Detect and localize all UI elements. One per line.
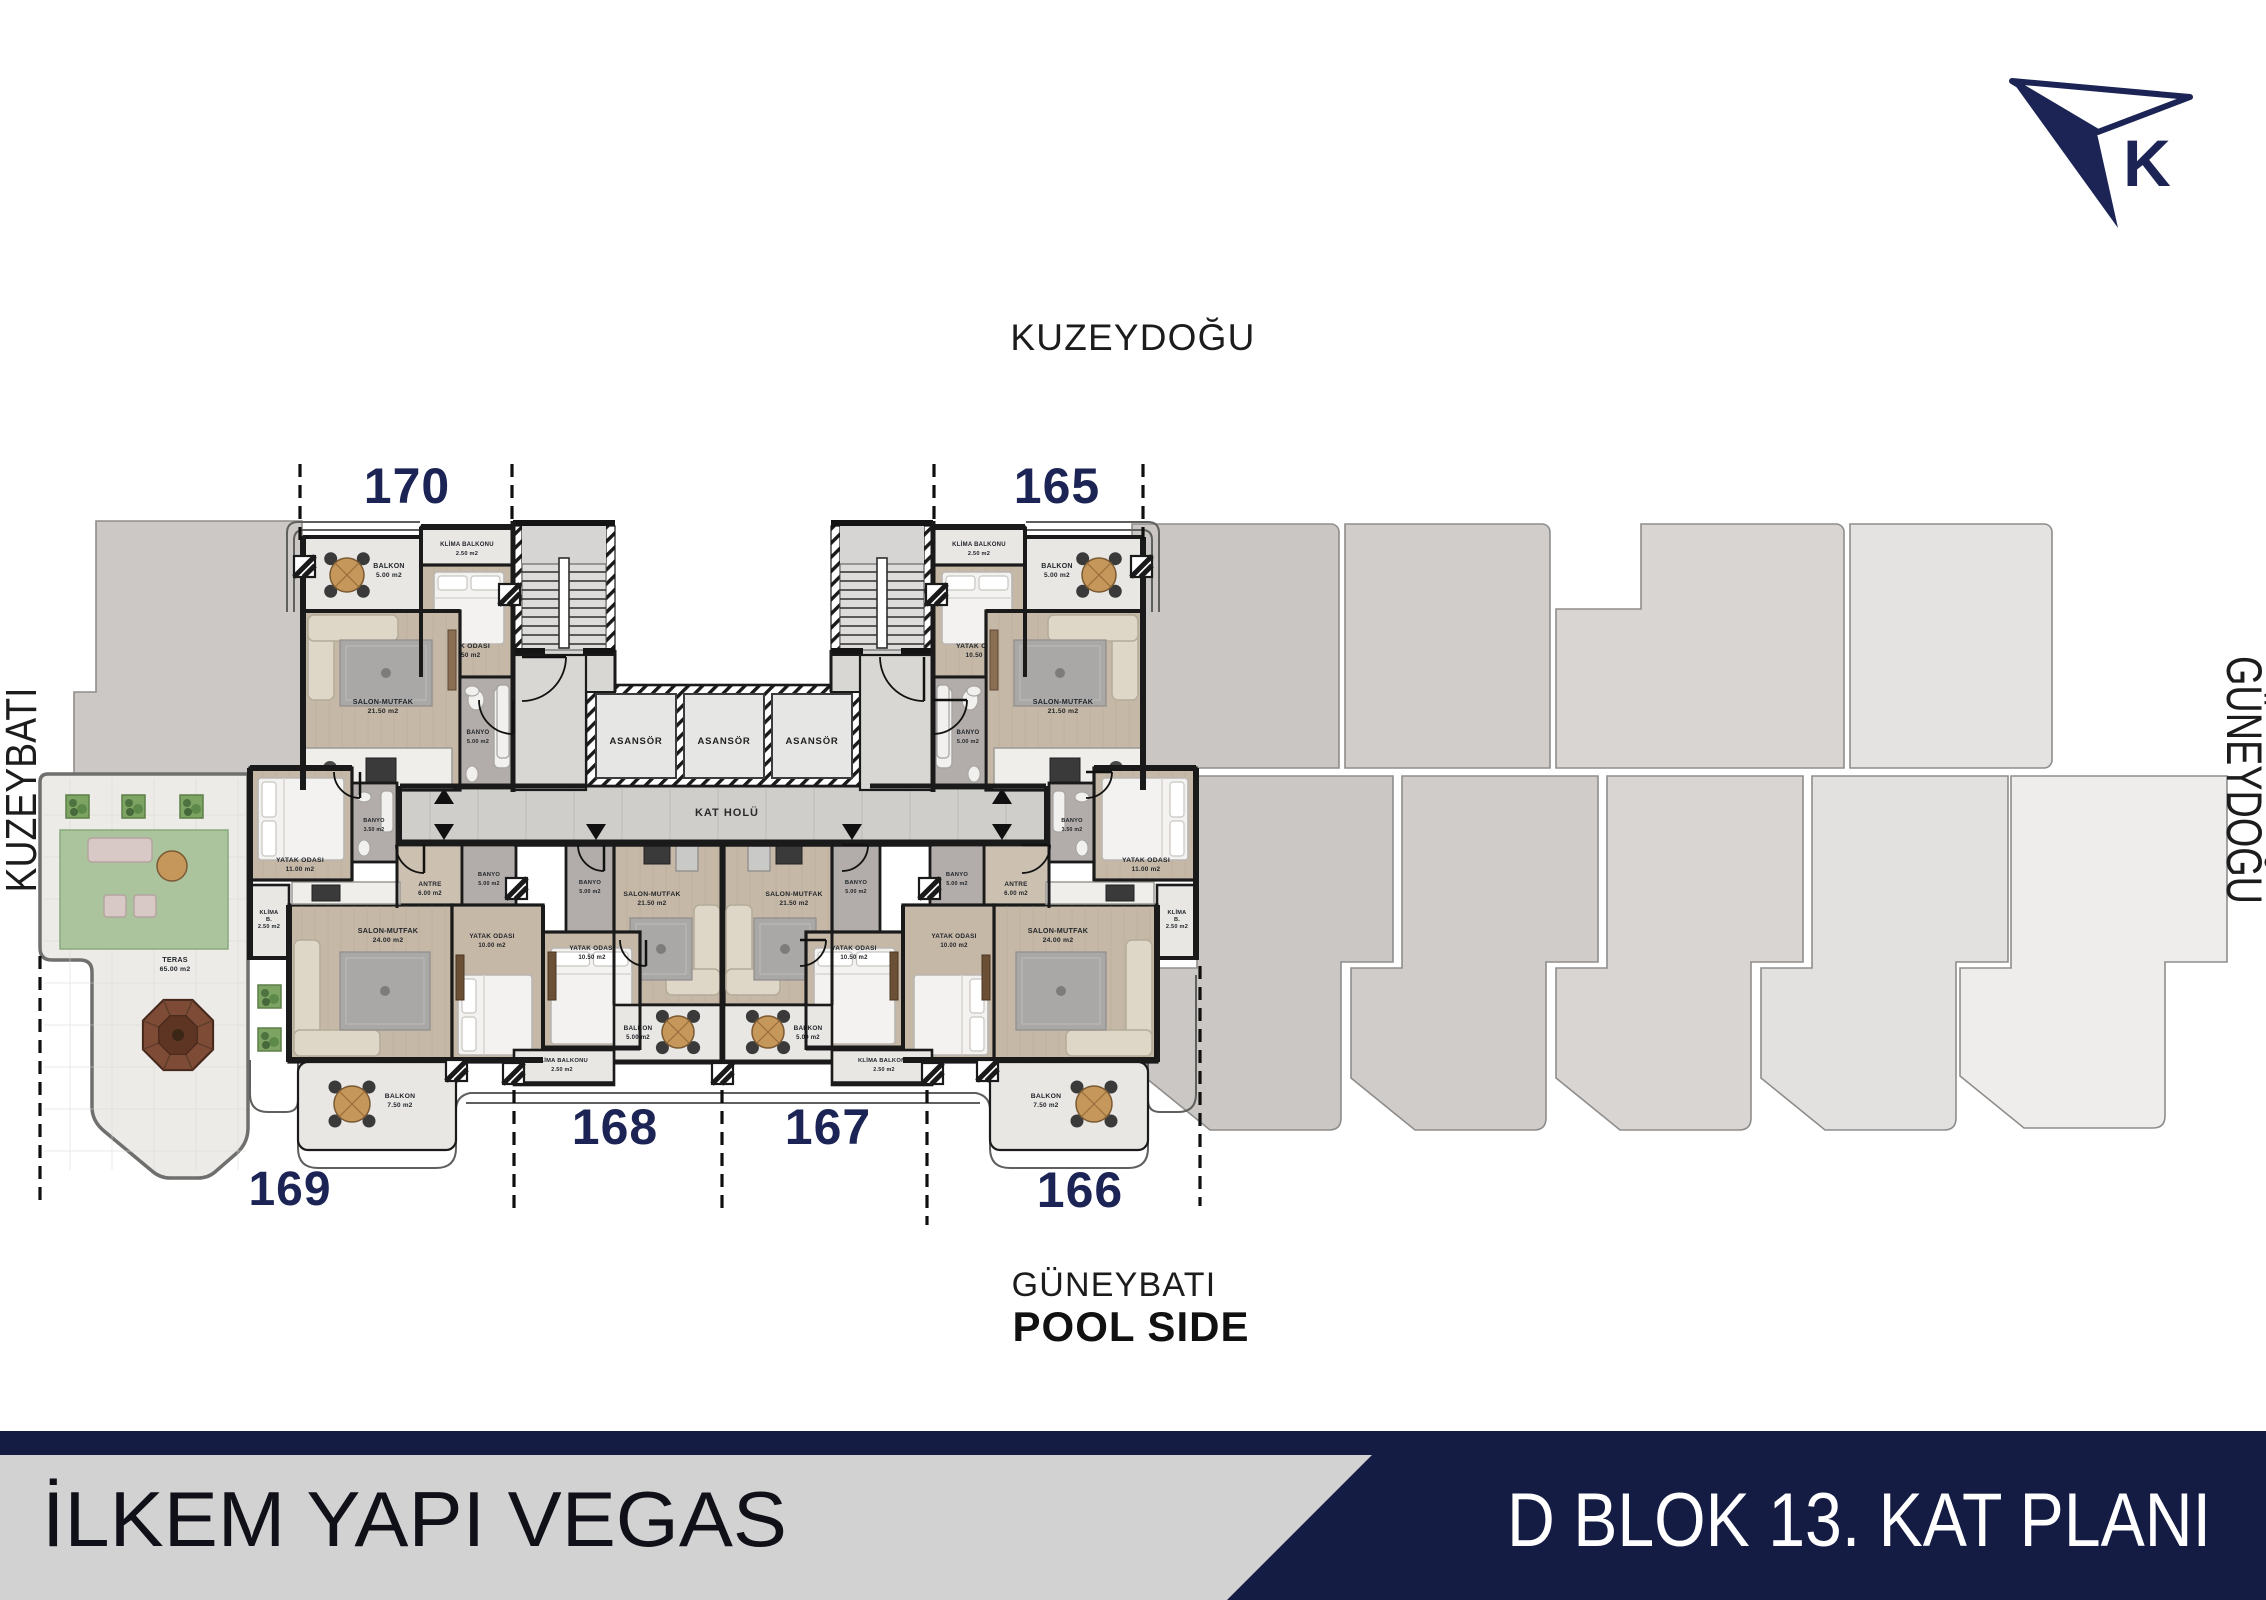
svg-text:7.50 m2: 7.50 m2: [1033, 1102, 1058, 1109]
svg-text:65.00 m2: 65.00 m2: [160, 966, 191, 973]
svg-text:10.00 m2: 10.00 m2: [478, 943, 506, 949]
svg-text:5.00 m2: 5.00 m2: [579, 889, 601, 895]
svg-text:YATAK ODASI: YATAK ODASI: [931, 933, 976, 940]
svg-text:YATAK ODASI: YATAK ODASI: [469, 933, 514, 940]
svg-text:SALON-MUTFAK: SALON-MUTFAK: [353, 697, 414, 706]
svg-text:3.50 m2: 3.50 m2: [1062, 827, 1083, 833]
svg-text:24.00 m2: 24.00 m2: [373, 937, 404, 944]
svg-text:B.: B.: [266, 917, 272, 923]
svg-text:KLİMA BALKONU: KLİMA BALKONU: [536, 1057, 588, 1064]
svg-text:BALKON: BALKON: [794, 1025, 823, 1032]
svg-text:ASANSÖR: ASANSÖR: [609, 736, 662, 747]
svg-text:GÜNEYDOĞU: GÜNEYDOĞU: [2216, 656, 2266, 904]
svg-text:2.50 m2: 2.50 m2: [968, 551, 990, 557]
svg-text:SALON-MUTFAK: SALON-MUTFAK: [1028, 926, 1089, 935]
svg-text:BALKON: BALKON: [1031, 1093, 1062, 1100]
svg-text:11.00 m2: 11.00 m2: [286, 866, 315, 873]
svg-text:167: 167: [785, 1099, 871, 1155]
svg-text:BALKON: BALKON: [624, 1025, 653, 1032]
svg-text:KUZEYDOĞU: KUZEYDOĞU: [1010, 317, 1255, 358]
svg-text:TERAS: TERAS: [162, 955, 188, 964]
svg-text:ASANSÖR: ASANSÖR: [785, 736, 838, 747]
svg-text:ANTRE: ANTRE: [418, 881, 442, 888]
svg-text:SALON-MUTFAK: SALON-MUTFAK: [358, 926, 419, 935]
svg-text:YATAK ODASI: YATAK ODASI: [276, 857, 324, 864]
svg-text:166: 166: [1037, 1162, 1123, 1218]
svg-text:7.50 m2: 7.50 m2: [387, 1102, 412, 1109]
svg-text:POOL SIDE: POOL SIDE: [1013, 1303, 1250, 1350]
svg-text:6.00 m2: 6.00 m2: [418, 891, 442, 897]
svg-text:BANYO: BANYO: [845, 880, 867, 886]
svg-text:2.50 m2: 2.50 m2: [1166, 924, 1188, 930]
svg-text:5.00 m2: 5.00 m2: [626, 1035, 650, 1041]
svg-text:GÜNEYBATI: GÜNEYBATI: [1012, 1266, 1217, 1304]
svg-text:169: 169: [248, 1163, 331, 1216]
svg-text:5.00 m2: 5.00 m2: [467, 739, 489, 745]
svg-text:B.: B.: [1174, 917, 1180, 923]
svg-text:YATAK ODASI: YATAK ODASI: [831, 945, 876, 952]
svg-text:11.00 m2: 11.00 m2: [1132, 866, 1161, 873]
svg-text:BANYO: BANYO: [478, 872, 500, 878]
svg-text:2.50 m2: 2.50 m2: [551, 1067, 573, 1073]
svg-text:K: K: [2123, 126, 2171, 200]
svg-text:BANYO: BANYO: [363, 818, 385, 824]
svg-text:5.00 m2: 5.00 m2: [376, 572, 402, 579]
svg-text:BANYO: BANYO: [1061, 818, 1083, 824]
svg-text:168: 168: [572, 1099, 658, 1155]
svg-text:6.00 m2: 6.00 m2: [1004, 891, 1028, 897]
svg-text:5.00 m2: 5.00 m2: [478, 881, 500, 887]
svg-text:ASANSÖR: ASANSÖR: [697, 736, 750, 747]
svg-text:KLİMA: KLİMA: [260, 909, 279, 916]
svg-text:21.50 m2: 21.50 m2: [779, 900, 808, 907]
svg-text:SALON-MUTFAK: SALON-MUTFAK: [623, 891, 680, 898]
svg-text:5.00 m2: 5.00 m2: [946, 881, 968, 887]
svg-text:BANYO: BANYO: [957, 730, 980, 736]
svg-text:BALKON: BALKON: [385, 1093, 416, 1100]
svg-text:BALKON: BALKON: [373, 563, 404, 570]
svg-text:SALON-MUTFAK: SALON-MUTFAK: [1033, 697, 1094, 706]
svg-text:KLİMA: KLİMA: [1168, 909, 1187, 916]
svg-text:YATAK ODASI: YATAK ODASI: [569, 945, 614, 952]
svg-text:5.00 m2: 5.00 m2: [796, 1035, 820, 1041]
svg-text:2.50 m2: 2.50 m2: [258, 924, 280, 930]
svg-text:YATAK ODASI: YATAK ODASI: [1122, 857, 1170, 864]
svg-text:165: 165: [1014, 458, 1100, 514]
svg-text:KLİMA BALKONU: KLİMA BALKONU: [952, 541, 1006, 548]
svg-text:D BLOK 13. KAT PLANI: D BLOK 13. KAT PLANI: [1507, 1478, 2211, 1563]
svg-text:21.50 m2: 21.50 m2: [1048, 708, 1079, 715]
svg-text:İLKEM YAPI VEGAS: İLKEM YAPI VEGAS: [42, 1475, 787, 1563]
svg-text:2.50 m2: 2.50 m2: [456, 551, 478, 557]
svg-text:KUZEYBATI: KUZEYBATI: [0, 688, 46, 893]
svg-text:KLİMA BALKONU: KLİMA BALKONU: [440, 541, 494, 548]
svg-text:SALON-MUTFAK: SALON-MUTFAK: [765, 891, 822, 898]
svg-text:5.00 m2: 5.00 m2: [957, 739, 979, 745]
svg-text:5.00 m2: 5.00 m2: [845, 889, 867, 895]
svg-text:KLİMA BALKONU: KLİMA BALKONU: [858, 1057, 910, 1064]
svg-text:KAT HOLÜ: KAT HOLÜ: [695, 806, 759, 819]
svg-text:21.50 m2: 21.50 m2: [368, 708, 399, 715]
svg-text:BANYO: BANYO: [579, 880, 601, 886]
svg-text:10.50 m2: 10.50 m2: [840, 955, 868, 961]
svg-text:21.50 m2: 21.50 m2: [637, 900, 666, 907]
svg-text:BANYO: BANYO: [467, 730, 490, 736]
svg-text:10.50 m2: 10.50 m2: [578, 955, 606, 961]
svg-text:2.50 m2: 2.50 m2: [873, 1067, 895, 1073]
svg-text:BANYO: BANYO: [946, 872, 968, 878]
svg-text:BALKON: BALKON: [1041, 563, 1072, 570]
svg-text:5.00 m2: 5.00 m2: [1044, 572, 1070, 579]
svg-text:10.00 m2: 10.00 m2: [940, 943, 968, 949]
svg-text:170: 170: [364, 458, 450, 514]
svg-text:3.50 m2: 3.50 m2: [364, 827, 385, 833]
svg-text:ANTRE: ANTRE: [1004, 881, 1028, 888]
svg-text:24.00 m2: 24.00 m2: [1043, 937, 1074, 944]
